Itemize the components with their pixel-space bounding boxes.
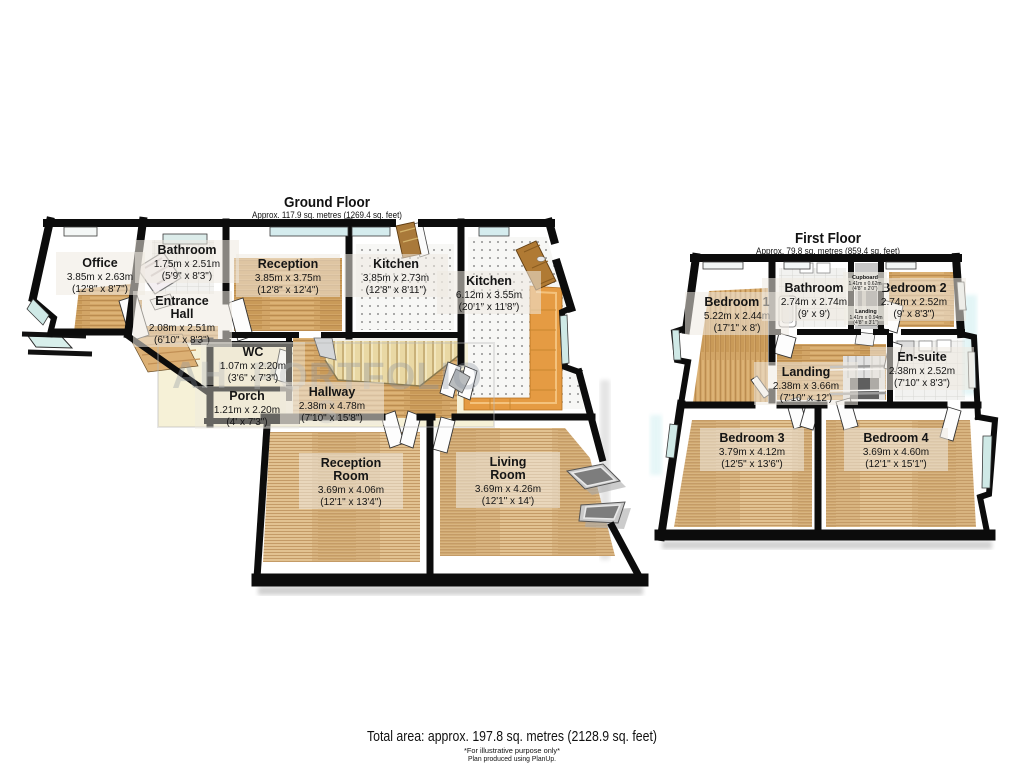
svg-text:Bedroom 2: Bedroom 2 [881,281,946,295]
svg-text:(3'6" x 7'3"): (3'6" x 7'3") [228,373,278,384]
svg-text:Living: Living [490,455,527,469]
svg-text:Office: Office [82,256,117,270]
svg-text:(5'9" x 8'3"): (5'9" x 8'3") [162,271,212,282]
svg-text:(4'8" x 2'0"): (4'8" x 2'0") [852,286,878,292]
svg-text:(7'10" x 12'): (7'10" x 12') [780,393,832,404]
svg-text:Plan produced using PlanUp.: Plan produced using PlanUp. [468,754,556,763]
svg-text:(12'8" x 12'4"): (12'8" x 12'4") [257,285,319,296]
svg-text:WC: WC [243,345,264,359]
svg-text:(9' x 8'3"): (9' x 8'3") [893,309,934,320]
svg-text:2.38m x 4.78m: 2.38m x 4.78m [299,401,365,412]
svg-text:Bathroom: Bathroom [784,281,843,295]
svg-text:2.38m x 3.66m: 2.38m x 3.66m [773,381,839,392]
svg-text:(4'8" x 3'1"): (4'8" x 3'1") [853,320,879,326]
svg-text:3.69m x 4.60m: 3.69m x 4.60m [863,447,929,458]
svg-text:(7'10" x 8'3"): (7'10" x 8'3") [894,378,950,389]
svg-text:Bathroom: Bathroom [157,243,216,257]
svg-text:Bedroom 3: Bedroom 3 [719,431,784,445]
svg-text:1.07m x 2.20m: 1.07m x 2.20m [220,361,286,372]
svg-text:(17'1" x 8'): (17'1" x 8') [714,323,761,334]
svg-text:Total area: approx. 197.8 sq.: Total area: approx. 197.8 sq. metres (21… [367,728,657,745]
svg-text:First Floor: First Floor [795,230,861,247]
svg-text:2.38m x 2.52m: 2.38m x 2.52m [889,366,955,377]
svg-text:3.69m x 4.06m: 3.69m x 4.06m [318,485,384,496]
svg-text:1.75m x 2.51m: 1.75m x 2.51m [154,259,220,270]
svg-text:(12'5" x 13'6"): (12'5" x 13'6") [721,459,783,470]
svg-text:Entrance: Entrance [155,294,209,308]
svg-text:3.69m x 4.26m: 3.69m x 4.26m [475,484,541,495]
svg-text:3.85m x 3.75m: 3.85m x 3.75m [255,273,321,284]
svg-text:6.12m x 3.55m: 6.12m x 3.55m [456,290,522,301]
svg-text:Approx. 79.8 sq. metres (859.4: Approx. 79.8 sq. metres (859.4 sq. feet) [756,246,900,256]
svg-text:Bedroom 4: Bedroom 4 [863,431,928,445]
svg-text:Reception: Reception [321,456,381,470]
svg-text:Reception: Reception [258,257,318,271]
svg-text:2.08m x 2.51m: 2.08m x 2.51m [149,323,215,334]
svg-text:Ground Floor: Ground Floor [284,194,370,211]
svg-text:(4' x 7'3"): (4' x 7'3") [226,417,267,428]
svg-text:Room: Room [333,469,368,483]
svg-text:Landing: Landing [782,365,831,379]
svg-text:Kitchen: Kitchen [466,274,512,288]
svg-text:Kitchen: Kitchen [373,257,419,271]
svg-text:(12'8" x 8'7"): (12'8" x 8'7") [72,284,128,295]
svg-text:3.85m x 2.73m: 3.85m x 2.73m [363,273,429,284]
svg-text:2.74m x 2.52m: 2.74m x 2.52m [881,297,947,308]
svg-text:En-suite: En-suite [897,350,946,364]
svg-text:Hall: Hall [171,307,194,321]
svg-text:Room: Room [490,468,525,482]
svg-text:Approx. 117.9 sq. metres (1269: Approx. 117.9 sq. metres (1269.4 sq. fee… [252,210,402,220]
svg-text:(12'1" x 14'): (12'1" x 14') [482,496,534,507]
svg-text:1.21m x 2.20m: 1.21m x 2.20m [214,405,280,416]
svg-text:2.74m x 2.74m: 2.74m x 2.74m [781,297,847,308]
svg-text:(12'8" x 8'11"): (12'8" x 8'11") [366,285,427,296]
svg-text:Bedroom 1: Bedroom 1 [704,295,769,309]
svg-text:(20'1" x 11'8"): (20'1" x 11'8") [459,302,520,313]
svg-text:5.22m x 2.44m: 5.22m x 2.44m [704,311,770,322]
svg-text:3.85m x 2.63m: 3.85m x 2.63m [67,272,133,283]
svg-text:Hallway: Hallway [309,385,356,399]
svg-text:(7'10" x 15'8"): (7'10" x 15'8") [301,413,363,424]
svg-text:Porch: Porch [229,389,264,403]
svg-text:(12'1" x 15'1"): (12'1" x 15'1") [865,459,927,470]
svg-text:3.79m x 4.12m: 3.79m x 4.12m [719,447,785,458]
svg-text:(12'1" x 13'4"): (12'1" x 13'4") [320,497,382,508]
svg-text:(9' x 9'): (9' x 9') [798,309,830,320]
